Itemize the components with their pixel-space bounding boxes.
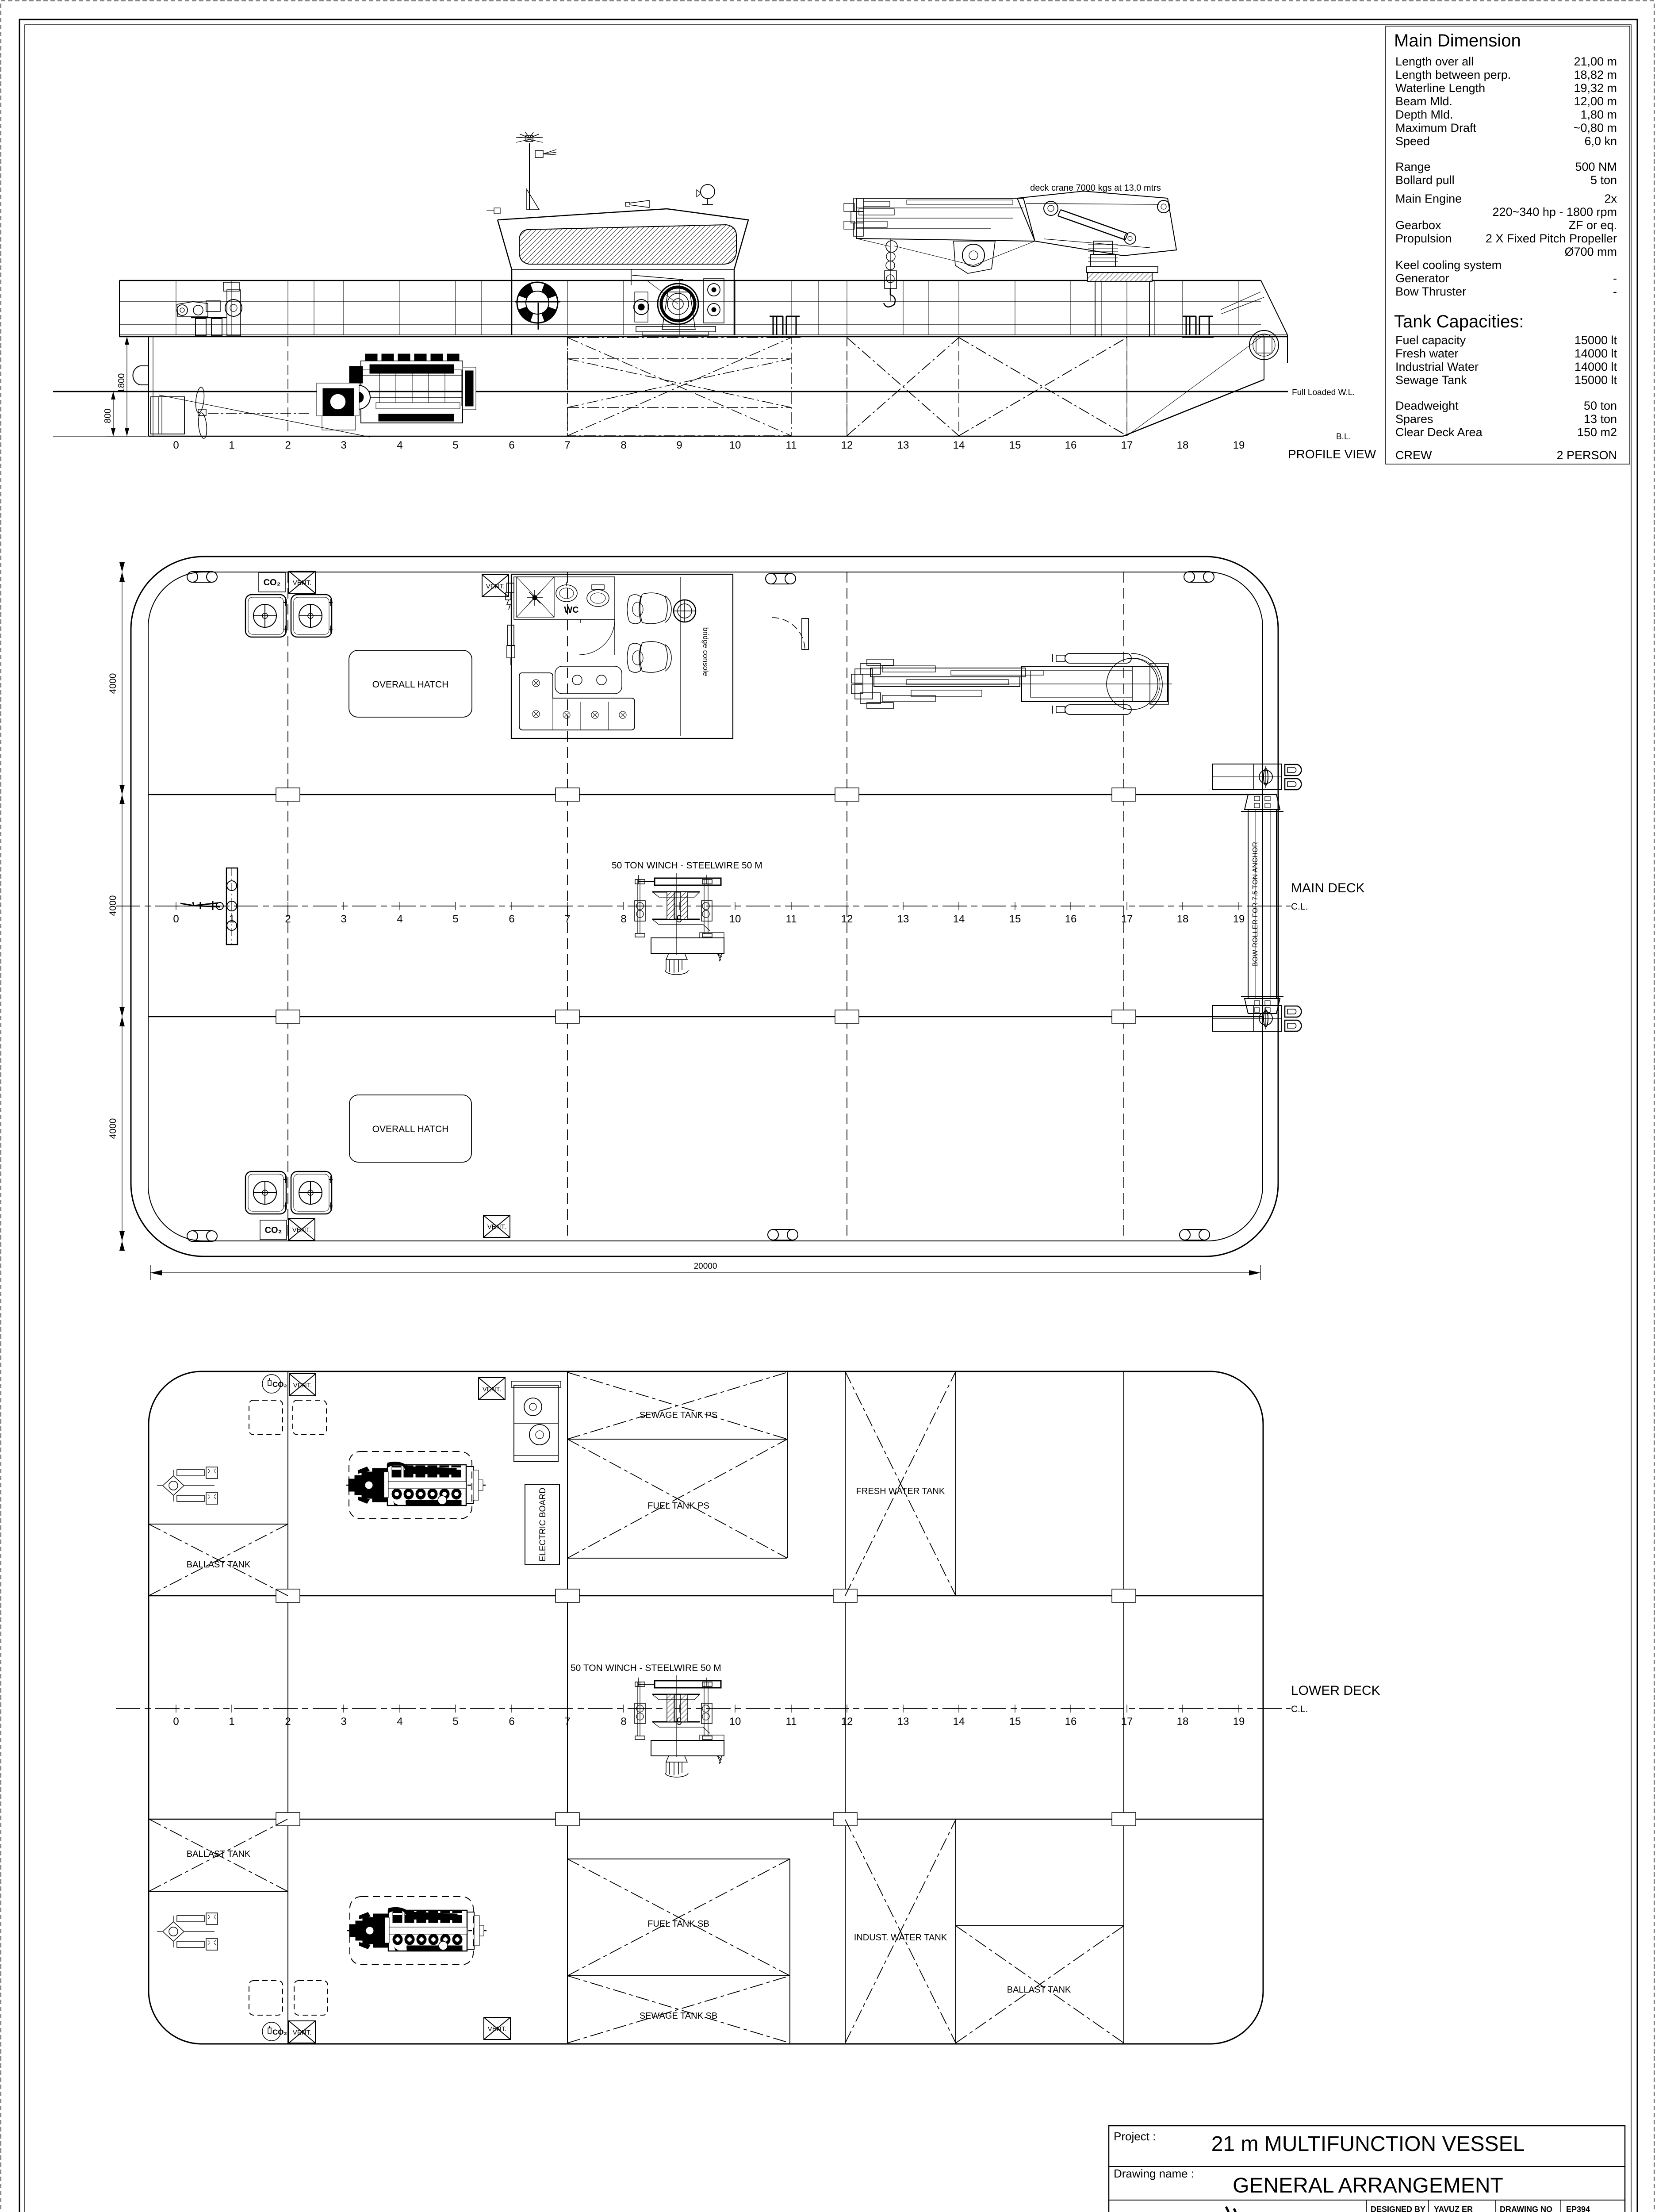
- svg-text:17: 17: [1121, 1716, 1133, 1728]
- svg-text:0: 0: [173, 913, 179, 925]
- svg-text:-: -: [1613, 285, 1617, 298]
- svg-text:6,0 kn: 6,0 kn: [1584, 134, 1617, 148]
- svg-text:bridge console: bridge console: [701, 627, 710, 676]
- svg-text:ZF or eq.: ZF or eq.: [1568, 219, 1617, 232]
- svg-text:8: 8: [621, 913, 626, 925]
- svg-text:C.L.: C.L.: [1291, 902, 1308, 912]
- svg-text:18: 18: [1177, 1716, 1189, 1728]
- svg-text:Fuel capacity: Fuel capacity: [1395, 334, 1466, 347]
- svg-text:4: 4: [397, 913, 402, 925]
- svg-text:50 ton: 50 ton: [1584, 399, 1617, 412]
- svg-text:Propulsion: Propulsion: [1395, 232, 1452, 245]
- svg-text:1: 1: [229, 1716, 234, 1728]
- svg-text:BALLAST TANK: BALLAST TANK: [187, 1560, 251, 1570]
- svg-text:Length over all: Length over all: [1395, 55, 1474, 68]
- svg-text:PROFILE VIEW: PROFILE VIEW: [1288, 447, 1376, 461]
- svg-text:6: 6: [509, 1716, 514, 1728]
- svg-text:Waterline Length: Waterline Length: [1395, 81, 1485, 95]
- svg-text:16: 16: [1065, 913, 1077, 925]
- svg-text:2: 2: [285, 1716, 291, 1728]
- svg-text:7: 7: [564, 913, 570, 925]
- svg-text:SEWAGE TANK PS: SEWAGE TANK PS: [640, 1410, 717, 1420]
- svg-text:Main Engine: Main Engine: [1395, 192, 1462, 205]
- svg-text:YAVUZ ER: YAVUZ ER: [1434, 2205, 1473, 2212]
- svg-text:15000 lt: 15000 lt: [1575, 334, 1617, 347]
- svg-text:800: 800: [103, 408, 113, 423]
- svg-text:-: -: [1613, 272, 1617, 285]
- svg-text:11: 11: [786, 913, 797, 925]
- svg-text:14: 14: [953, 1716, 965, 1728]
- svg-text:8: 8: [621, 1716, 626, 1728]
- svg-text:5: 5: [452, 1716, 458, 1728]
- svg-text:12: 12: [841, 913, 853, 925]
- svg-text:18: 18: [1177, 913, 1189, 925]
- svg-text:0: 0: [173, 1716, 179, 1728]
- svg-text:OVERALL HATCH: OVERALL HATCH: [372, 680, 449, 690]
- svg-text:5: 5: [452, 913, 458, 925]
- svg-text:2 X Fixed Pitch Propeller: 2 X Fixed Pitch Propeller: [1486, 232, 1617, 245]
- svg-text:GENERAL ARRANGEMENT: GENERAL ARRANGEMENT: [1233, 2174, 1503, 2197]
- svg-text:Range: Range: [1395, 160, 1431, 173]
- svg-text:3: 3: [341, 439, 346, 451]
- svg-text:Gearbox: Gearbox: [1395, 219, 1441, 232]
- svg-text:11: 11: [786, 439, 797, 451]
- svg-text:Sewage Tank: Sewage Tank: [1395, 373, 1467, 387]
- svg-text:14000 lt: 14000 lt: [1575, 347, 1617, 360]
- svg-text:FUEL TANK SB: FUEL TANK SB: [647, 1919, 709, 1929]
- svg-text:DESIGNED BY: DESIGNED BY: [1371, 2205, 1425, 2212]
- svg-text:15: 15: [1009, 913, 1021, 925]
- svg-text:Tank Capacities:: Tank Capacities:: [1394, 312, 1524, 331]
- svg-text:17: 17: [1121, 913, 1133, 925]
- svg-text:BOW ROLLER FOR 7.5 TON ANCHOR: BOW ROLLER FOR 7.5 TON ANCHOR: [1252, 842, 1259, 967]
- svg-text:Keel cooling system: Keel cooling system: [1395, 258, 1502, 272]
- svg-text:deck crane 7000 kgs at 13,0 mt: deck crane 7000 kgs at 13,0 mtrs: [1030, 183, 1161, 193]
- svg-text:11: 11: [786, 1716, 797, 1728]
- svg-text:14000 lt: 14000 lt: [1575, 360, 1617, 373]
- svg-text:0: 0: [173, 439, 179, 451]
- svg-text:8: 8: [621, 439, 626, 451]
- svg-text:17: 17: [1121, 439, 1133, 451]
- svg-text:Generator: Generator: [1395, 272, 1449, 285]
- svg-text:19,32 m: 19,32 m: [1574, 81, 1617, 95]
- svg-text:EP394: EP394: [1566, 2205, 1590, 2212]
- svg-text:500 NM: 500 NM: [1575, 160, 1617, 173]
- svg-text:4: 4: [397, 1716, 402, 1728]
- svg-text:15: 15: [1009, 439, 1021, 451]
- svg-text:WC: WC: [564, 605, 578, 615]
- svg-text:BALLAST TANK: BALLAST TANK: [1007, 1985, 1071, 1995]
- svg-text:4: 4: [397, 439, 402, 451]
- svg-text:4000: 4000: [108, 895, 118, 916]
- svg-text:50 TON WINCH - STEELWIRE 50 M: 50 TON WINCH - STEELWIRE 50 M: [571, 1663, 721, 1673]
- svg-text:Bow Thruster: Bow Thruster: [1395, 285, 1466, 298]
- svg-text:16: 16: [1065, 1716, 1077, 1728]
- svg-text:1,80 m: 1,80 m: [1580, 108, 1617, 121]
- svg-text:FRESH WATER TANK: FRESH WATER TANK: [856, 1486, 945, 1496]
- svg-text:2: 2: [285, 439, 291, 451]
- svg-text:18: 18: [1177, 439, 1189, 451]
- svg-text:3: 3: [341, 913, 346, 925]
- svg-text:15000 lt: 15000 lt: [1575, 373, 1617, 387]
- svg-text:B.L.: B.L.: [1336, 432, 1351, 442]
- svg-text:5: 5: [452, 439, 458, 451]
- svg-text:CREW: CREW: [1395, 449, 1432, 462]
- svg-text:~0,80 m: ~0,80 m: [1574, 121, 1617, 134]
- svg-text:Deadweight: Deadweight: [1395, 399, 1459, 412]
- svg-text:16: 16: [1065, 439, 1077, 451]
- svg-text:Main Dimension: Main Dimension: [1394, 31, 1521, 50]
- svg-text:ELECTRIC BOARD: ELECTRIC BOARD: [538, 1488, 548, 1562]
- svg-text:12: 12: [841, 1716, 853, 1728]
- svg-text:1800: 1800: [117, 373, 126, 393]
- svg-text:Beam Mld.: Beam Mld.: [1395, 95, 1452, 108]
- svg-text:12: 12: [841, 439, 853, 451]
- svg-text:13: 13: [897, 439, 909, 451]
- svg-text:LOWER DECK: LOWER DECK: [1291, 1683, 1380, 1698]
- svg-text:OVERALL HATCH: OVERALL HATCH: [372, 1124, 449, 1134]
- svg-text:7: 7: [564, 439, 570, 451]
- svg-text:3: 3: [341, 1716, 346, 1728]
- svg-text:C.L.: C.L.: [1291, 1704, 1308, 1714]
- svg-text:Length between perp.: Length between perp.: [1395, 68, 1511, 81]
- svg-text:10: 10: [729, 913, 741, 925]
- svg-text:10: 10: [729, 1716, 741, 1728]
- svg-text:Ø700 mm: Ø700 mm: [1564, 245, 1617, 258]
- svg-text:Full Loaded W.L.: Full Loaded W.L.: [1292, 388, 1355, 397]
- svg-text:Fresh water: Fresh water: [1395, 347, 1459, 360]
- svg-text:2x: 2x: [1604, 192, 1617, 205]
- svg-text:6: 6: [509, 913, 514, 925]
- svg-text:Spares: Spares: [1395, 412, 1433, 426]
- svg-text:6: 6: [509, 439, 514, 451]
- svg-text:Maximum Draft: Maximum Draft: [1395, 121, 1477, 134]
- svg-text:10: 10: [729, 439, 741, 451]
- svg-text:Drawing name :: Drawing name :: [1114, 2167, 1194, 2180]
- svg-text:19: 19: [1233, 1716, 1245, 1728]
- svg-text:14: 14: [953, 913, 965, 925]
- svg-text:15: 15: [1009, 1716, 1021, 1728]
- svg-text:220~340 hp - 1800 rpm: 220~340 hp - 1800 rpm: [1493, 205, 1617, 219]
- svg-text:1: 1: [229, 439, 234, 451]
- svg-text:Clear Deck Area: Clear Deck Area: [1395, 426, 1483, 439]
- svg-text:7: 7: [564, 1716, 570, 1728]
- svg-text:18,82 m: 18,82 m: [1574, 68, 1617, 81]
- svg-text:2: 2: [285, 913, 291, 925]
- svg-text:150 m2: 150 m2: [1577, 426, 1617, 439]
- svg-text:13 ton: 13 ton: [1584, 412, 1617, 426]
- svg-text:20000: 20000: [694, 1262, 717, 1271]
- svg-text:5 ton: 5 ton: [1590, 173, 1617, 187]
- svg-text:50 TON WINCH - STEELWIRE 50 M: 50 TON WINCH - STEELWIRE 50 M: [612, 860, 762, 871]
- svg-text:21,00 m: 21,00 m: [1574, 55, 1617, 68]
- svg-text:Bollard pull: Bollard pull: [1395, 173, 1455, 187]
- svg-text:12,00 m: 12,00 m: [1574, 95, 1617, 108]
- svg-text:2 PERSON: 2 PERSON: [1556, 449, 1617, 462]
- svg-text:BALLAST TANK: BALLAST TANK: [187, 1849, 251, 1859]
- svg-text:Depth Mld.: Depth Mld.: [1395, 108, 1453, 121]
- svg-text:14: 14: [953, 439, 965, 451]
- svg-text:Speed: Speed: [1395, 134, 1430, 148]
- svg-text:INDUST. WATER TANK: INDUST. WATER TANK: [854, 1933, 947, 1943]
- svg-text:4000: 4000: [108, 673, 118, 694]
- svg-text:4000: 4000: [108, 1118, 118, 1139]
- svg-text:9: 9: [676, 439, 682, 451]
- svg-text:19: 19: [1233, 439, 1245, 451]
- svg-text:Industrial Water: Industrial Water: [1395, 360, 1479, 373]
- svg-text:MAIN DECK: MAIN DECK: [1291, 881, 1365, 895]
- svg-text:13: 13: [897, 1716, 909, 1728]
- svg-text:SEWAGE TANK SB: SEWAGE TANK SB: [640, 2011, 717, 2021]
- svg-text:FUEL TANK PS: FUEL TANK PS: [647, 1501, 709, 1511]
- svg-text:21 m MULTIFUNCTION VESSEL: 21 m MULTIFUNCTION VESSEL: [1211, 2132, 1525, 2156]
- svg-text:19: 19: [1233, 913, 1245, 925]
- svg-text:DRAWING NO: DRAWING NO: [1500, 2205, 1552, 2212]
- svg-text:Project :: Project :: [1114, 2130, 1156, 2143]
- svg-text:13: 13: [897, 913, 909, 925]
